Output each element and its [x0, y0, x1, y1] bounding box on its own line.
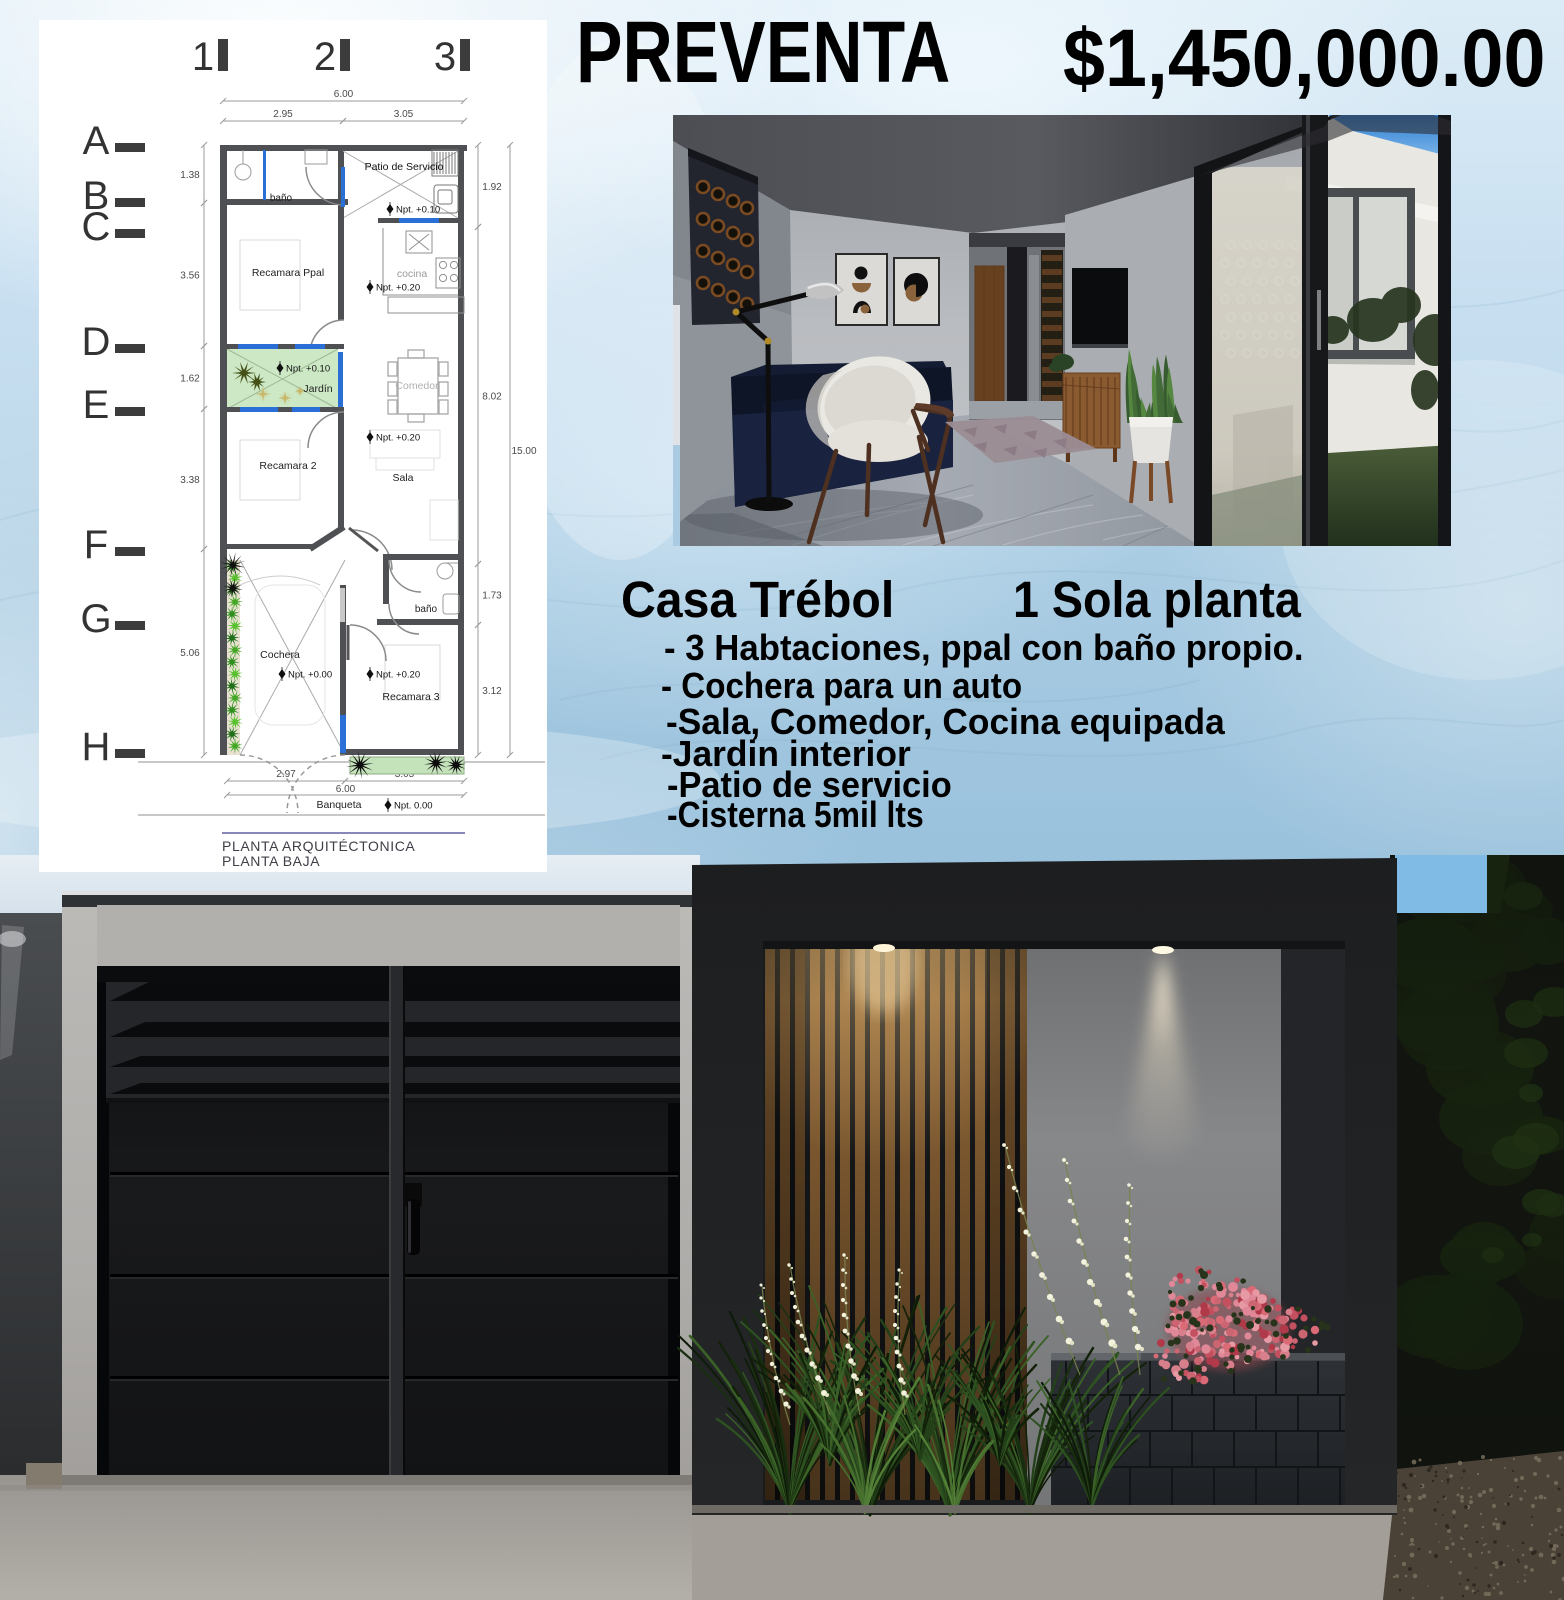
- svg-text:3: 3: [434, 35, 456, 79]
- svg-text:Recamara Ppal: Recamara Ppal: [252, 267, 324, 279]
- svg-text:1.92: 1.92: [482, 182, 502, 193]
- svg-text:Npt. 0.00: Npt. 0.00: [394, 801, 433, 812]
- svg-text:Banqueta: Banqueta: [317, 799, 362, 811]
- svg-text:Recamara 3: Recamara 3: [382, 691, 439, 703]
- svg-text:3.56: 3.56: [180, 271, 200, 282]
- svg-text:2.95: 2.95: [273, 109, 293, 120]
- svg-text:3.38: 3.38: [180, 475, 200, 486]
- svg-text:6.00: 6.00: [336, 784, 356, 795]
- svg-text:1.62: 1.62: [180, 374, 200, 385]
- svg-text:Comedor: Comedor: [395, 380, 439, 392]
- svg-text:D: D: [82, 320, 111, 364]
- svg-text:Npt. +0.10: Npt. +0.10: [286, 364, 330, 375]
- svg-text:15.00: 15.00: [511, 446, 536, 457]
- svg-text:baño: baño: [270, 193, 293, 204]
- svg-text:Npt. +0.20: Npt. +0.20: [376, 283, 420, 294]
- svg-text:Recamara 2: Recamara 2: [259, 460, 316, 472]
- svg-text:cocina: cocina: [397, 268, 428, 280]
- svg-text:Cochera: Cochera: [260, 649, 300, 661]
- svg-text:Npt. +0.20: Npt. +0.20: [376, 433, 420, 444]
- svg-text:PLANTA BAJA: PLANTA BAJA: [222, 853, 320, 869]
- svg-text:2.97: 2.97: [276, 769, 296, 780]
- svg-text:A: A: [83, 119, 110, 163]
- svg-text:C: C: [82, 205, 111, 249]
- svg-text:3.05: 3.05: [394, 109, 414, 120]
- svg-text:PLANTA ARQUITÉCTONICA: PLANTA ARQUITÉCTONICA: [222, 838, 415, 854]
- svg-text:5.06: 5.06: [180, 648, 200, 659]
- svg-text:G: G: [80, 597, 111, 641]
- svg-text:Patio de Servicio: Patio de Servicio: [365, 161, 444, 173]
- svg-text:1.73: 1.73: [482, 591, 502, 602]
- svg-text:Jardín: Jardín: [303, 383, 332, 395]
- svg-text:baño: baño: [415, 604, 438, 615]
- svg-text:Npt. +0.00: Npt. +0.00: [288, 670, 332, 681]
- svg-text:F: F: [84, 523, 108, 567]
- svg-text:Npt. +0.20: Npt. +0.20: [376, 670, 420, 681]
- svg-text:1: 1: [192, 35, 214, 79]
- svg-text:8.02: 8.02: [482, 392, 502, 403]
- svg-text:Sala: Sala: [392, 472, 413, 484]
- svg-text:E: E: [83, 383, 110, 427]
- svg-text:3.12: 3.12: [482, 686, 502, 697]
- svg-text:H: H: [82, 725, 111, 769]
- svg-text:1.38: 1.38: [180, 170, 200, 181]
- svg-text:Npt. +0.10: Npt. +0.10: [396, 205, 440, 216]
- svg-text:6.00: 6.00: [334, 89, 354, 100]
- svg-text:2: 2: [314, 35, 336, 79]
